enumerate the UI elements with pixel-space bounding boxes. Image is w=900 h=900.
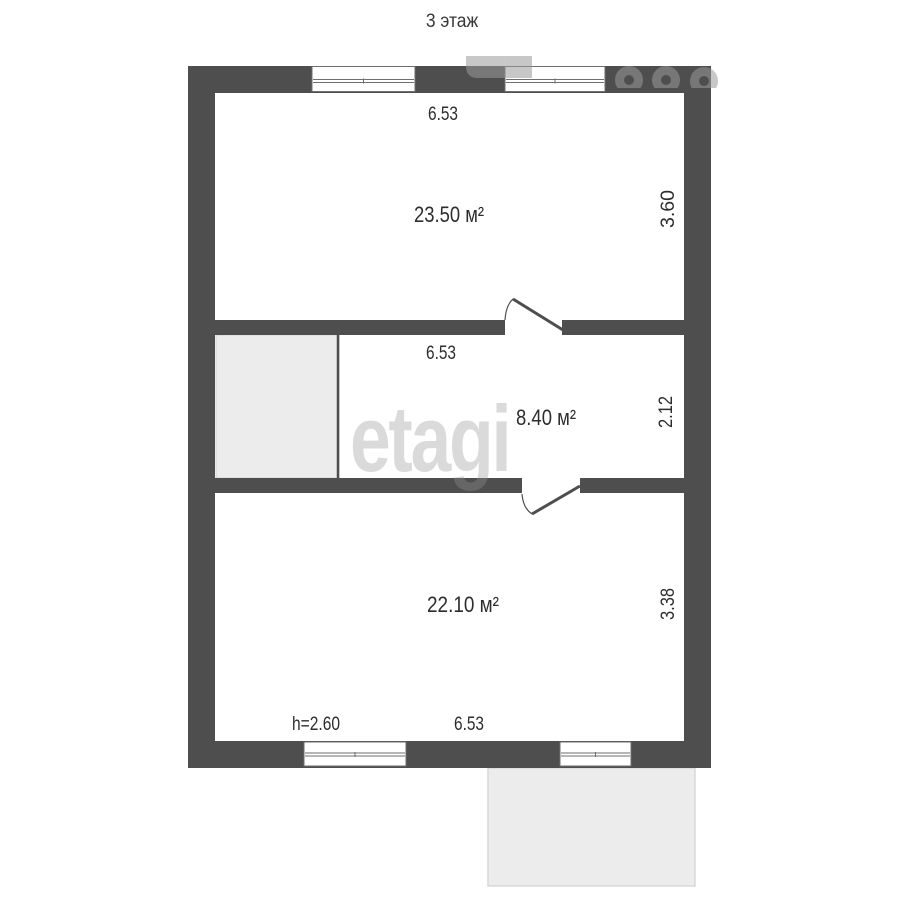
- dim-depth-bottom-room: 3.38: [658, 588, 679, 620]
- area-label-top-room: 23.50 м²: [414, 202, 484, 227]
- dim-width-top-room: 6.53: [428, 104, 458, 125]
- dim-depth-middle-room: 2.12: [656, 396, 677, 428]
- floor-title: 3 этаж: [426, 11, 478, 33]
- dim-width-bottom-room: 6.53: [454, 714, 484, 735]
- stairwell-block: [216, 335, 339, 478]
- window-bottom-left: [304, 742, 406, 766]
- floor-plan-page: 3 этаж: [0, 0, 900, 900]
- watermark-bar: [466, 56, 532, 78]
- dim-width-middle-room: 6.53: [426, 343, 456, 364]
- dim-depth-middle-room-group: 2.12: [656, 396, 677, 428]
- interior-wall-upper: [215, 320, 684, 335]
- ceiling-height-label: h=2.60: [292, 714, 340, 735]
- window-bottom-right: [560, 742, 631, 766]
- window-top-left: [312, 67, 415, 92]
- annex-below-plan: [488, 768, 695, 886]
- floor-plan-canvas: 6.53 23.50 м² 3.60 6.53 8.40 м² 2.12 22.…: [0, 0, 900, 900]
- area-label-middle-room: 8.40 м²: [516, 405, 576, 430]
- dim-depth-bottom-room-group: 3.38: [658, 588, 679, 620]
- dim-depth-top-room-group: 3.60: [658, 190, 679, 228]
- door-opening-upper: [505, 319, 562, 336]
- area-label-bottom-room: 22.10 м²: [427, 592, 499, 617]
- dim-depth-top-room: 3.60: [658, 190, 679, 228]
- interior-wall-lower: [215, 478, 684, 493]
